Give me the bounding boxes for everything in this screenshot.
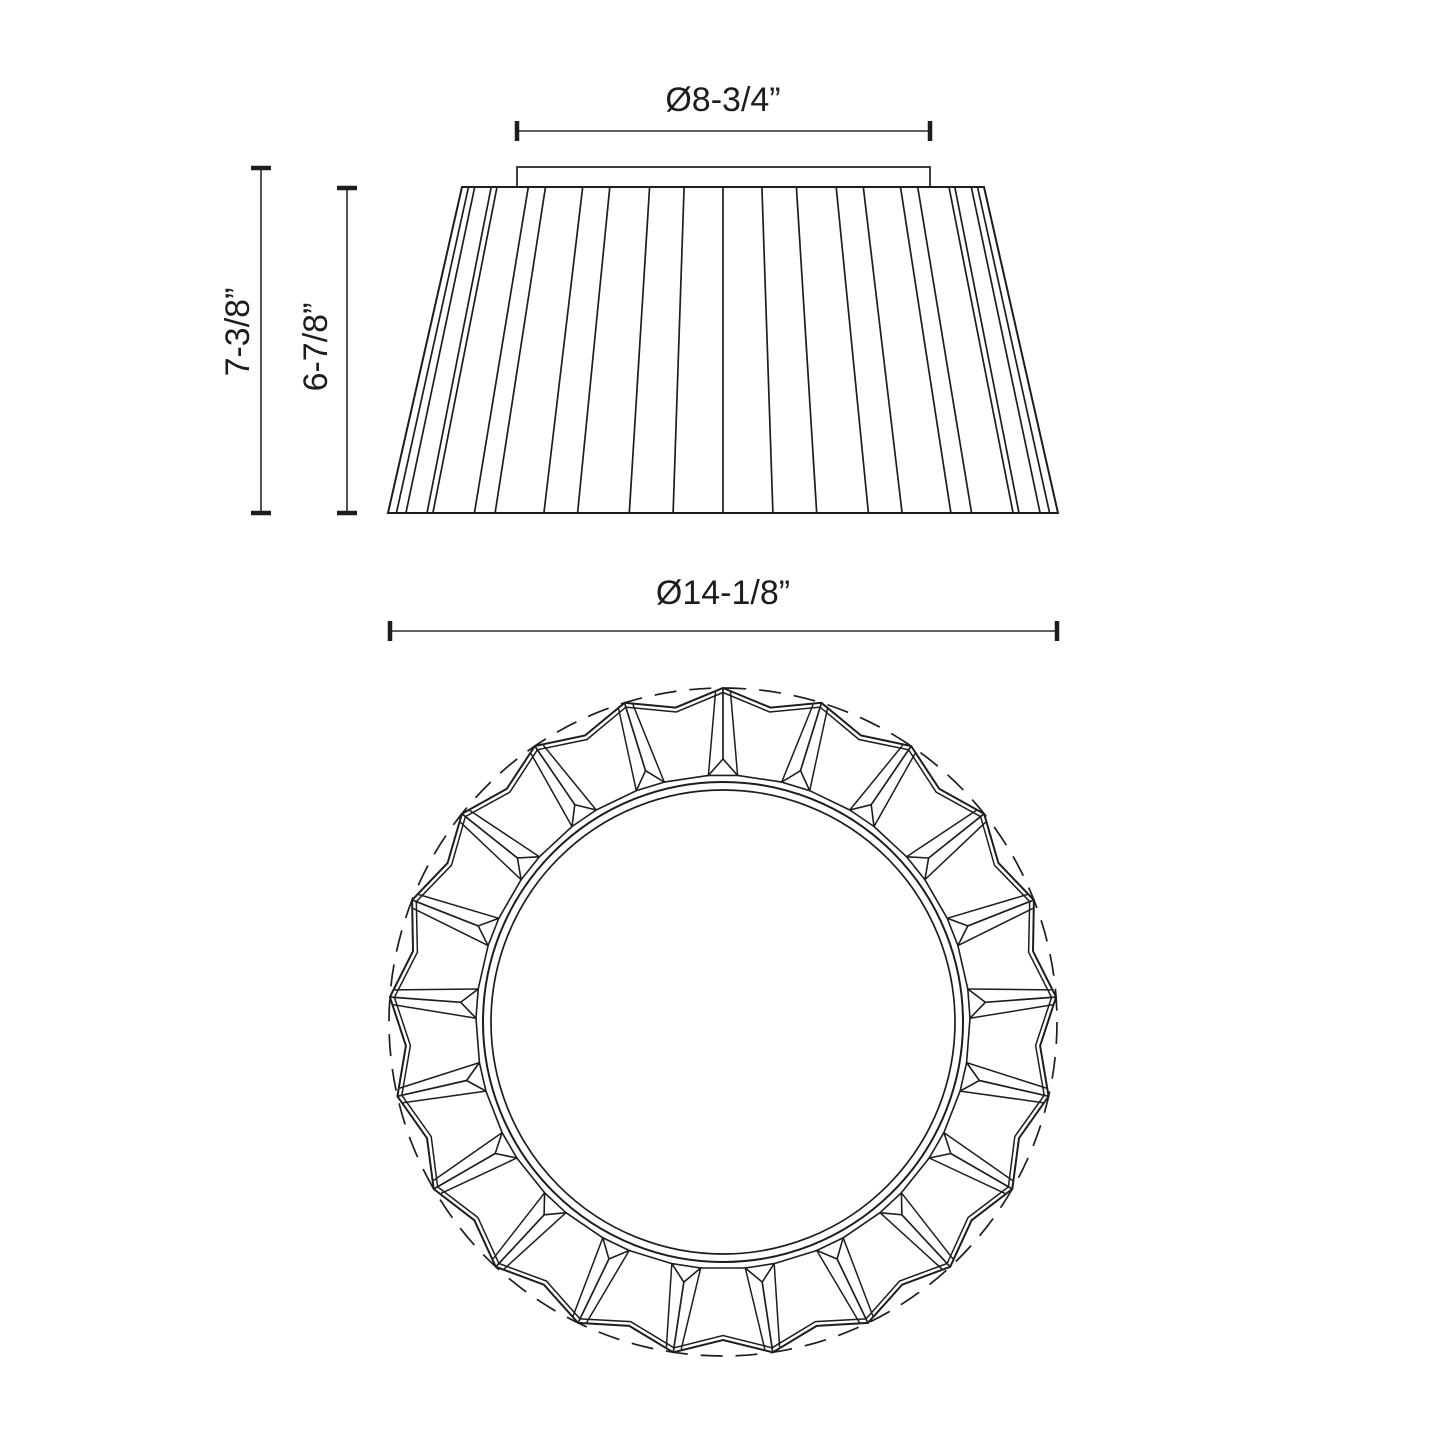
- pleat-line: [544, 187, 583, 513]
- bottom-diameter-label: Ø14-1/8”: [656, 574, 790, 612]
- max-diameter-dashed-circle: [389, 688, 1057, 1356]
- facet-edge: [907, 810, 977, 856]
- pleat-line: [396, 187, 468, 513]
- plan-fold-line: [497, 1215, 545, 1266]
- plan-dart: [495, 1133, 517, 1158]
- facet-edge: [880, 1213, 942, 1269]
- plan-fold-line: [902, 1215, 950, 1266]
- plan-fold-line: [762, 1282, 772, 1351]
- shade-height-label: 6-7/8”: [297, 303, 335, 392]
- pleat-line: [863, 187, 902, 513]
- canopy-outline: [517, 167, 930, 187]
- pleat-line: [796, 187, 816, 513]
- pleat-line: [836, 187, 868, 513]
- facet-edge: [774, 1264, 779, 1348]
- overall-height-dimension: 7-3/8”: [219, 168, 271, 513]
- plan-dart: [461, 989, 479, 1018]
- facet-edge: [543, 745, 596, 810]
- pleat-line: [955, 187, 1019, 513]
- pleat-line: [978, 187, 1050, 513]
- pleat-line: [673, 187, 684, 513]
- elevation-view: [388, 167, 1058, 513]
- plan-fold-line: [979, 1081, 1047, 1097]
- facet-edge: [395, 989, 479, 990]
- plan-dart: [929, 1133, 951, 1158]
- facet-edge: [850, 745, 903, 810]
- plan-dart: [960, 1063, 979, 1092]
- facet-chord: [967, 1018, 970, 1062]
- facet-edge: [745, 1268, 765, 1349]
- facet-chord: [629, 1251, 672, 1264]
- pleat-line: [629, 187, 649, 513]
- facet-edge: [968, 989, 1052, 990]
- facet-chord: [539, 827, 572, 857]
- facet-edge: [681, 1268, 701, 1349]
- inner-rim-inner-circle: [491, 790, 955, 1254]
- facet-edge: [925, 822, 986, 880]
- facet-chord: [874, 827, 907, 857]
- plan-dart: [708, 759, 737, 775]
- canopy-diameter-label: Ø8-3/4”: [665, 81, 780, 119]
- facet-edge: [460, 822, 521, 880]
- plan-dart: [544, 1193, 566, 1215]
- facet-edge: [393, 1005, 476, 1018]
- plan-fold-line: [985, 997, 1055, 1002]
- plan-dart: [517, 857, 539, 880]
- facet-edge: [400, 1063, 480, 1089]
- pleat-line: [427, 187, 491, 513]
- technical-drawing: Ø8-3/4” 7-3/8” 6-7/8” Ø14-1/8: [0, 0, 1445, 1445]
- plan-fold-line: [398, 1081, 466, 1097]
- facet-chord: [476, 1018, 479, 1062]
- plan-view: [389, 688, 1057, 1356]
- plan-dart: [572, 805, 596, 827]
- drawing-canvas: Ø8-3/4” 7-3/8” 6-7/8” Ø14-1/8: [0, 0, 1445, 1445]
- facet-edge: [666, 1264, 671, 1348]
- facet-edge: [413, 908, 488, 945]
- plan-fold-line: [625, 704, 646, 771]
- facet-edge: [731, 692, 738, 775]
- facet-edge: [619, 709, 637, 791]
- plan-dart: [968, 989, 986, 1018]
- facet-edge: [708, 692, 715, 775]
- facet-edge: [504, 1213, 566, 1269]
- plan-fold-line: [673, 1282, 683, 1351]
- plan-dart: [907, 857, 929, 880]
- plan-dart: [880, 1193, 902, 1215]
- facet-edge: [970, 1005, 1053, 1018]
- facet-edge: [901, 1193, 953, 1259]
- facet-edge: [493, 1193, 544, 1259]
- facet-chord: [664, 775, 708, 782]
- facet-chord: [517, 1158, 545, 1193]
- facet-chord: [774, 1251, 817, 1264]
- facet-edge: [470, 810, 540, 856]
- facet-edge: [531, 754, 572, 827]
- facet-chord: [901, 1158, 929, 1193]
- facet-edge: [967, 1063, 1047, 1089]
- plan-dart: [850, 805, 874, 827]
- facet-chord: [738, 775, 782, 782]
- plan-dart: [672, 1264, 701, 1283]
- bottom-diameter-dimension: Ø14-1/8”: [390, 574, 1057, 641]
- plan-dart: [467, 1063, 486, 1092]
- facet-edge: [874, 754, 915, 827]
- facet-edge: [958, 908, 1033, 945]
- pleat-lines: [396, 187, 1049, 513]
- pleat-line: [762, 187, 773, 513]
- canopy-diameter-dimension: Ø8-3/4”: [517, 81, 930, 141]
- shade-height-dimension: 6-7/8”: [297, 188, 357, 513]
- pleat-line: [578, 187, 610, 513]
- facet-edge: [944, 1133, 1013, 1181]
- overall-height-label: 7-3/8”: [219, 288, 257, 377]
- facet-edge: [434, 1133, 503, 1181]
- pleat-scallop-outline: [390, 688, 1056, 1352]
- plan-dart: [745, 1264, 774, 1283]
- facet-edge: [810, 709, 828, 791]
- plan-fold-line: [391, 997, 461, 1002]
- scallop-outer-line: [390, 688, 1056, 1352]
- plan-fold-line: [801, 704, 822, 771]
- inner-rim-outer-circle: [483, 782, 963, 1262]
